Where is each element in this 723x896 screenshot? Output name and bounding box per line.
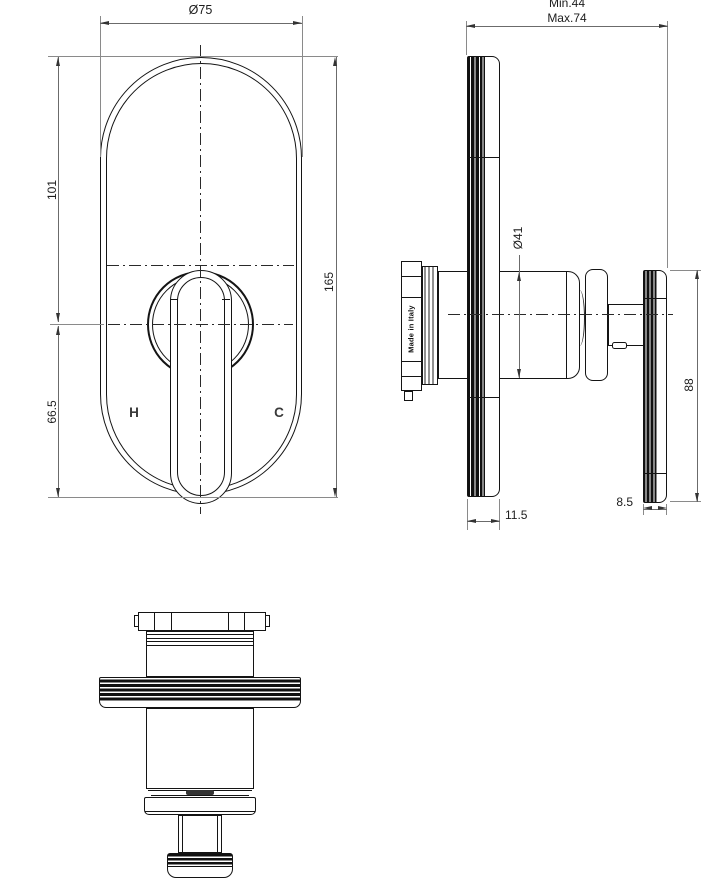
dim165-arrow-top (333, 57, 337, 66)
cartridge-lip-center-seal (186, 790, 214, 795)
minmax-arrow-left (466, 24, 475, 28)
dim-plate-height-label: 165 (322, 272, 336, 292)
dim75-arrow-left (100, 21, 109, 25)
cartridge-dome-arc (576, 290, 585, 346)
cartridge-threaded-tip (167, 853, 233, 878)
bottom-stem-inner-left (182, 816, 183, 853)
dim88-line (697, 270, 698, 502)
valve-body-cylinder (438, 271, 580, 379)
side-centerline (448, 314, 673, 315)
front-mid-extension (50, 324, 104, 325)
hex-division-1 (402, 276, 421, 277)
dim-top-to-handle-center-label: 101 (45, 180, 59, 200)
technical-drawing-canvas: H C Ø75 101 66.5 165 (0, 0, 723, 896)
lever-transition-tick-right (222, 299, 230, 300)
plate-break-line-upper (467, 157, 500, 158)
wall-plate-side (467, 56, 500, 497)
hex-division-2 (402, 297, 421, 298)
hex-bottom-tab (404, 391, 413, 401)
dim75-arrow-right (293, 21, 302, 25)
dim665-arrow-top (56, 326, 60, 335)
hex-division-3 (402, 361, 421, 362)
dim-handle-thickness-label: 8.5 (605, 495, 633, 510)
dim-plate-width-label: Ø75 (178, 3, 223, 18)
minmax-extension-right (667, 21, 668, 268)
dim85-arrow-right (658, 506, 667, 510)
dim665-arrow-bottom (56, 488, 60, 497)
hex-cap-tab-right (265, 615, 270, 627)
hex-cap-facet-1 (154, 613, 155, 630)
dim88-arrow-bottom (695, 493, 699, 502)
hot-label: H (124, 405, 144, 420)
dim115-extension-right (499, 499, 500, 530)
lever-stem-side (608, 304, 644, 346)
front-handle-centerline (108, 324, 293, 325)
neck-thread-4 (147, 645, 253, 646)
hex-cap-tab-left (134, 615, 139, 627)
dim115-arrow-left (467, 519, 476, 523)
front-vertical-centerline (200, 45, 201, 514)
cartridge-lower-body (146, 708, 254, 789)
dim41-arrow-bottom (517, 369, 521, 378)
hex-cap-facet-2 (171, 613, 172, 630)
dim101-arrow-top (56, 57, 60, 66)
dim75-extension-right (302, 16, 303, 157)
dim85-arrow-left (643, 506, 652, 510)
cold-label: C (269, 405, 289, 420)
dim-handle-height-label: 88 (682, 378, 696, 391)
lever-break-line-lower (643, 473, 667, 474)
dim165-arrow-bottom (333, 488, 337, 497)
dim75-extension-left (100, 16, 101, 157)
dim41-arrow-top (517, 272, 521, 281)
dim-wall-depth-max-label: Max.74 (535, 11, 599, 26)
minmax-dim-line (466, 26, 668, 27)
lever-break-line-upper (643, 298, 667, 299)
dim88-arrow-top (695, 270, 699, 279)
front-bottom-extension (48, 497, 338, 498)
neck-thread-2 (147, 638, 253, 639)
neck-thread-1 (147, 634, 253, 635)
cartridge-bottom-stem (178, 815, 222, 853)
minmax-arrow-right (659, 24, 668, 28)
base-disc-inner-line (145, 811, 255, 812)
dim-body-diameter-label: Ø41 (511, 227, 525, 250)
lever-transition-tick-left (170, 299, 178, 300)
stem-clip-detail (612, 342, 627, 349)
front-top-extension (48, 56, 338, 57)
cartridge-base-disc (144, 797, 256, 815)
hex-cap-facet-3 (228, 613, 229, 630)
dim-wall-depth-min-label: Min.44 (535, 0, 599, 11)
cartridge-hex-cap (138, 612, 266, 631)
dim-handle-center-to-bottom-label: 66.5 (45, 400, 59, 423)
dim-plate-thickness-label: 11.5 (505, 508, 547, 523)
front-upper-centerline (107, 265, 294, 266)
dim75-line (100, 23, 302, 24)
plate-break-line-lower (467, 397, 500, 398)
threaded-collar (422, 266, 438, 385)
made-in-italy-label: Made in Italy (407, 305, 416, 353)
dim115-arrow-right (491, 519, 500, 523)
dim101-arrow-bottom (56, 313, 60, 322)
bottom-stem-inner-right (217, 816, 218, 853)
neck-thread-3 (147, 641, 253, 642)
handle-rosette-side (585, 269, 608, 381)
cartridge-ribbed-flange (99, 677, 301, 708)
lever-bar-side (643, 270, 667, 503)
cylinder-end-line (566, 272, 567, 378)
hex-division-4 (402, 376, 421, 377)
dim115-extension-left (467, 499, 468, 530)
hex-cap-facet-4 (244, 613, 245, 630)
